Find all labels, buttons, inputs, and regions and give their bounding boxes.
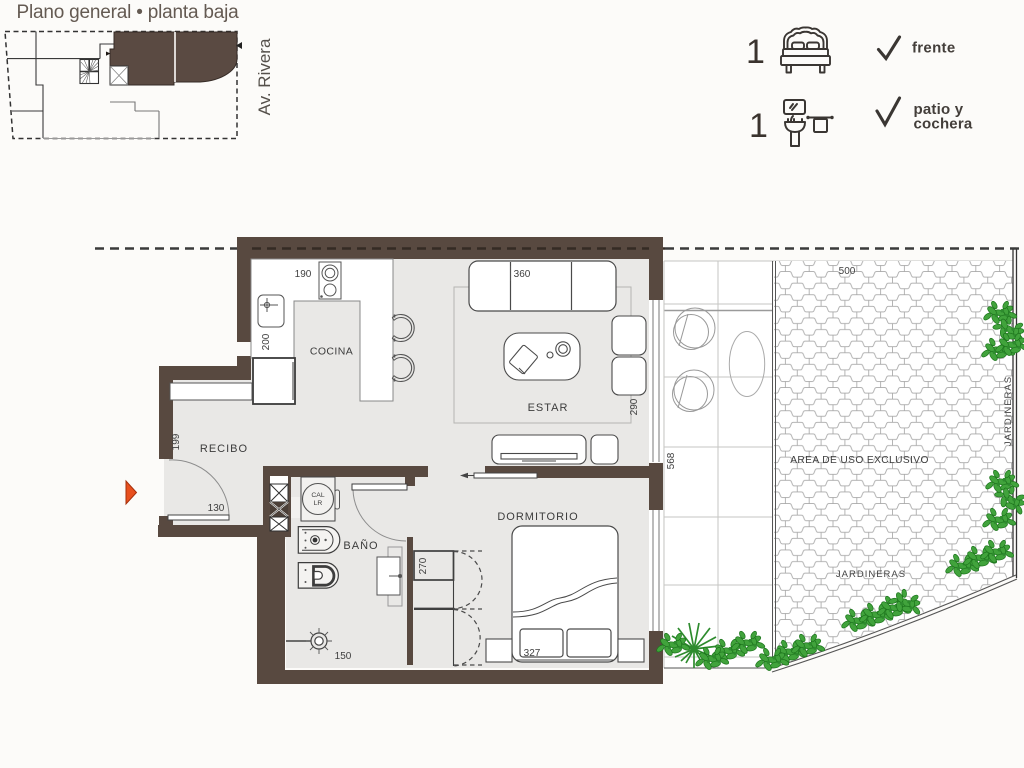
svg-text:CAL: CAL	[311, 492, 324, 499]
svg-text:500: 500	[839, 266, 856, 277]
svg-text:130: 130	[208, 503, 225, 514]
svg-text:568: 568	[666, 452, 677, 469]
svg-text:150: 150	[335, 651, 352, 662]
svg-text:AREA DE USO EXCLUSIVO: AREA DE USO EXCLUSIVO	[790, 455, 929, 466]
svg-text:360: 360	[514, 269, 531, 280]
svg-text:ESTAR: ESTAR	[528, 402, 569, 414]
svg-text:290: 290	[629, 398, 640, 415]
svg-text:JARDINERAS: JARDINERAS	[1003, 376, 1014, 446]
svg-text:327: 327	[524, 648, 541, 659]
svg-text:BAÑO: BAÑO	[343, 539, 378, 552]
svg-text:Av. Rivera: Av. Rivera	[255, 38, 274, 115]
svg-text:JARDINERAS: JARDINERAS	[836, 569, 906, 580]
svg-text:1: 1	[746, 33, 765, 71]
svg-text:DORMITORIO: DORMITORIO	[497, 511, 578, 523]
svg-text:frente: frente	[912, 40, 955, 57]
svg-text:cochera: cochera	[914, 116, 973, 133]
svg-text:COCINA: COCINA	[310, 346, 353, 358]
svg-text:200: 200	[261, 333, 272, 350]
svg-text:RECIBO: RECIBO	[200, 443, 248, 455]
svg-text:190: 190	[295, 269, 312, 280]
svg-text:Plano general • planta baja: Plano general • planta baja	[17, 2, 240, 23]
svg-text:LR: LR	[314, 500, 323, 507]
svg-text:1: 1	[749, 107, 768, 145]
svg-text:199: 199	[171, 433, 182, 450]
svg-text:270: 270	[418, 557, 429, 574]
